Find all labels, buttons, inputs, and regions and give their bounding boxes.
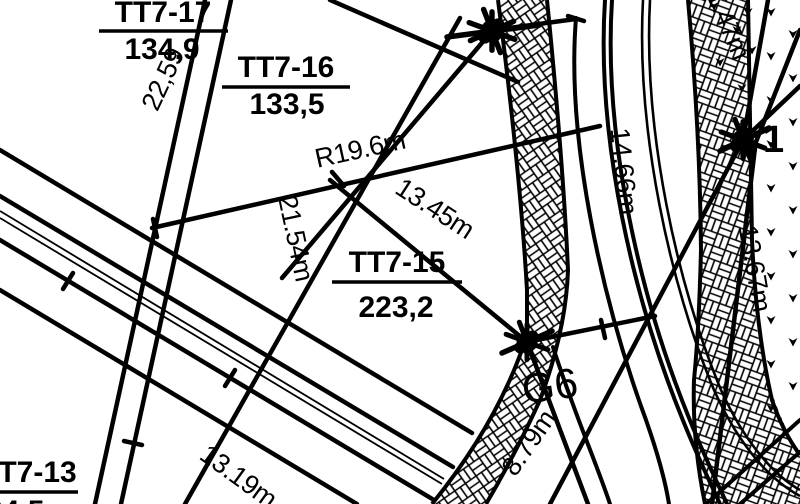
grass-mark-icon (789, 206, 798, 215)
parcel-area: 24,5 (0, 495, 44, 504)
point-label-1: 1 (763, 119, 784, 161)
parcel-name: TT7-17 (115, 0, 212, 29)
dim-14-66: 14.66m (604, 126, 643, 216)
grass-mark-icon (789, 338, 798, 347)
parcel-label-tt7-15: TT7-15 223,2 (332, 246, 462, 324)
plot-plan-svg: TT7-17 134,9 TT7-16 133,5 TT7-15 223,2 T… (0, 0, 800, 504)
tick (124, 441, 142, 445)
parcel-label-tt7-13: TT7-13 24,5 (0, 456, 78, 504)
grass-mark-icon (767, 316, 776, 325)
grass-mark-icon (767, 360, 776, 369)
grass-mark-icon (789, 382, 798, 391)
grass-mark-icon (789, 118, 798, 127)
parcel-name: TT7-16 (238, 51, 335, 84)
grass-mark-icon (789, 162, 798, 171)
dim-13-45: 13.45m (390, 172, 479, 245)
parcel-name: TT7-15 (349, 246, 446, 279)
grass-mark-icon (789, 250, 798, 259)
tick (601, 320, 605, 338)
dim-13-19: 13.19m (194, 439, 282, 504)
point-label-g6: G6 (519, 359, 581, 413)
grass-mark-icon (789, 74, 798, 83)
parcel-label-tt7-16: TT7-16 133,5 (222, 51, 350, 121)
dim-21-54: 21.54m (272, 192, 319, 283)
grass-mark-icon (767, 228, 776, 237)
grass-mark-icon (789, 294, 798, 303)
dim-r19-6: R19.6m (312, 125, 408, 174)
grass-mark-icon (767, 184, 776, 193)
parcel-name: TT7-13 (0, 456, 77, 489)
plot-plan-canvas: TT7-17 134,9 TT7-16 133,5 TT7-15 223,2 T… (0, 0, 800, 504)
parcel-area: 223,2 (358, 291, 433, 324)
grass-mark-icon (767, 52, 776, 61)
parcel-area: 133,5 (249, 88, 324, 121)
